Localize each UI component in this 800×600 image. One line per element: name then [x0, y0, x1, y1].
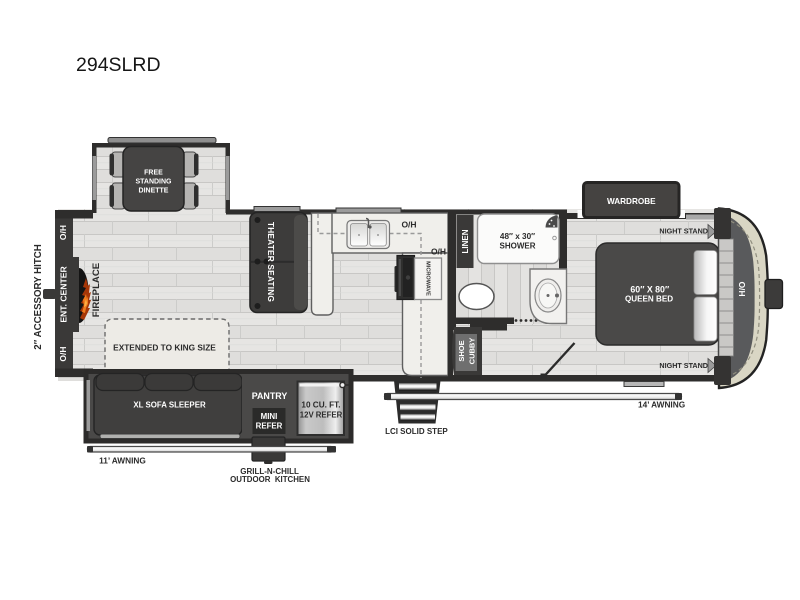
svg-text:THEATER SEATING: THEATER SEATING [266, 222, 276, 302]
svg-text:LINEN: LINEN [461, 229, 470, 253]
svg-text:O/H: O/H [431, 247, 446, 257]
svg-text:2″ ACCESSORY HITCH: 2″ ACCESSORY HITCH [33, 244, 44, 349]
svg-text:60″ X 80″: 60″ X 80″ [630, 284, 670, 294]
svg-text:14’ AWNING: 14’ AWNING [638, 400, 685, 410]
svg-text:QUEEN BED: QUEEN BED [625, 294, 673, 303]
svg-text:XL SOFA SLEEPER: XL SOFA SLEEPER [133, 401, 206, 410]
svg-text:FREE: FREE [144, 170, 163, 177]
svg-text:11’ AWNING: 11’ AWNING [99, 456, 146, 466]
svg-text:MINI: MINI [261, 412, 278, 421]
svg-text:DINETTE: DINETTE [139, 188, 169, 195]
svg-text:ENT. CENTER: ENT. CENTER [59, 266, 69, 323]
svg-text:CUBBY: CUBBY [468, 338, 477, 365]
svg-text:FIREPLACE: FIREPLACE [91, 262, 102, 317]
svg-text:48″ x 30″: 48″ x 30″ [500, 232, 535, 241]
svg-text:SHOE: SHOE [457, 340, 466, 361]
svg-text:REFER: REFER [256, 422, 283, 431]
svg-text:O/H: O/H [58, 346, 68, 361]
svg-text:294SLRD: 294SLRD [76, 54, 161, 76]
svg-text:10 CU. FT.: 10 CU. FT. [301, 401, 340, 410]
svg-text:EXTENDED TO KING SIZE: EXTENDED TO KING SIZE [113, 343, 216, 353]
svg-text:MICROWAVE: MICROWAVE [425, 261, 431, 296]
svg-text:O/H: O/H [401, 220, 416, 230]
svg-text:STANDING: STANDING [135, 179, 172, 186]
svg-text:12V REFER: 12V REFER [300, 411, 343, 420]
svg-text:OUTDOOR KITCHEN: OUTDOOR KITCHEN [230, 475, 310, 484]
svg-text:LCI SOLID STEP: LCI SOLID STEP [385, 427, 448, 436]
svg-text:SHOWER: SHOWER [500, 242, 536, 251]
svg-text:PANTRY: PANTRY [252, 391, 288, 401]
svg-text:NIGHT STAND: NIGHT STAND [659, 227, 708, 236]
svg-text:WARDROBE: WARDROBE [607, 197, 656, 206]
svg-text:NIGHT STAND: NIGHT STAND [659, 361, 708, 370]
svg-text:O/H: O/H [58, 225, 68, 240]
svg-text:H/O: H/O [737, 281, 747, 297]
